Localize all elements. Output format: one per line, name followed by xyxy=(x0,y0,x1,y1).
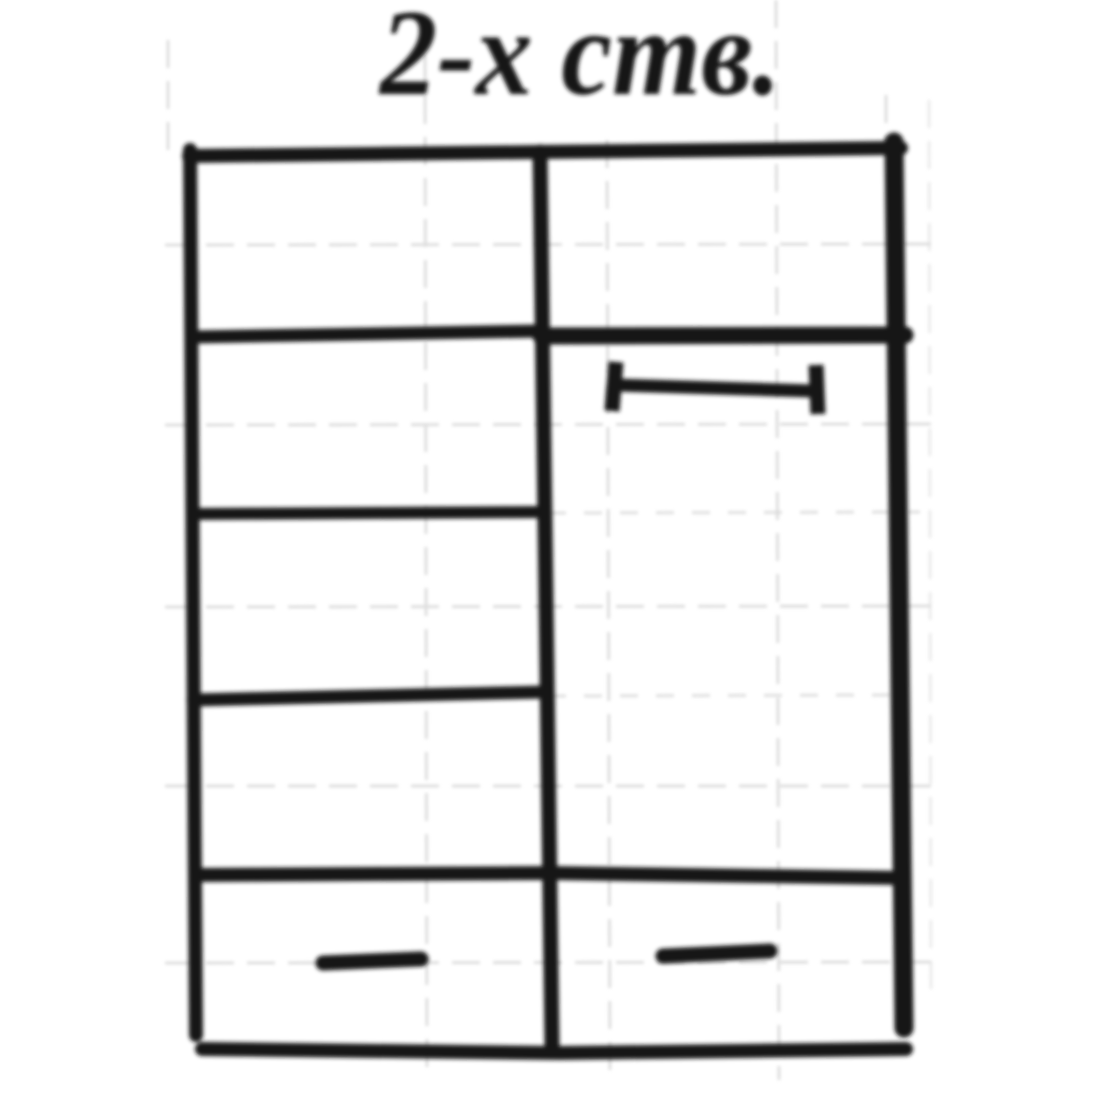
svg-text:2-х ств.: 2-х ств. xyxy=(378,0,781,121)
